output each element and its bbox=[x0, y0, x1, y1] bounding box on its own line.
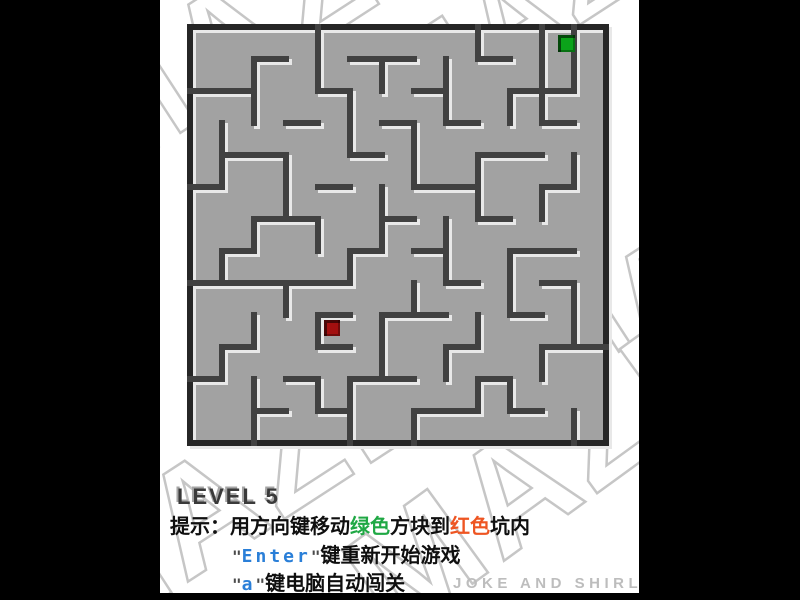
quote-mark: " bbox=[232, 547, 242, 566]
hint-prefix: 提示：用方向键移动 bbox=[170, 516, 350, 538]
content-area: MAZE MAZE MAZE MAZE MAZE LEVEL 5 提示：用方向键… bbox=[160, 0, 639, 593]
auto-hint-text: 键电脑自动闯关 bbox=[265, 573, 405, 593]
enter-hint-line: "Enter"键重新开始游戏 bbox=[232, 539, 460, 568]
maze[interactable] bbox=[183, 20, 615, 452]
right-black-bar bbox=[639, 0, 800, 600]
maze-walls bbox=[183, 20, 615, 452]
green-square bbox=[558, 35, 575, 52]
hint-red-word: 红色 bbox=[450, 516, 490, 538]
hint-green-word: 绿色 bbox=[350, 516, 390, 538]
left-black-bar bbox=[0, 0, 160, 600]
red-square bbox=[324, 320, 340, 336]
enter-key-label: Enter bbox=[242, 546, 311, 567]
enter-hint-text: 键重新开始游戏 bbox=[320, 545, 460, 567]
hint-suffix: 坑内 bbox=[490, 516, 530, 538]
quote-mark: " bbox=[255, 575, 265, 593]
hint-line: 提示：用方向键移动绿色方块到红色坑内 bbox=[170, 510, 530, 539]
level-label: LEVEL 5 bbox=[177, 484, 280, 510]
bottom-black-bar bbox=[0, 593, 800, 600]
hint-mid: 方块到 bbox=[390, 516, 450, 538]
auto-hint-line: "a"键电脑自动闯关 bbox=[232, 567, 405, 593]
quote-mark: " bbox=[232, 575, 242, 593]
credit-text: JOKE AND SHIRLEY bbox=[453, 575, 639, 592]
a-key-label: a bbox=[242, 574, 256, 593]
game-screen: MAZE MAZE MAZE MAZE MAZE LEVEL 5 提示：用方向键… bbox=[0, 0, 800, 600]
